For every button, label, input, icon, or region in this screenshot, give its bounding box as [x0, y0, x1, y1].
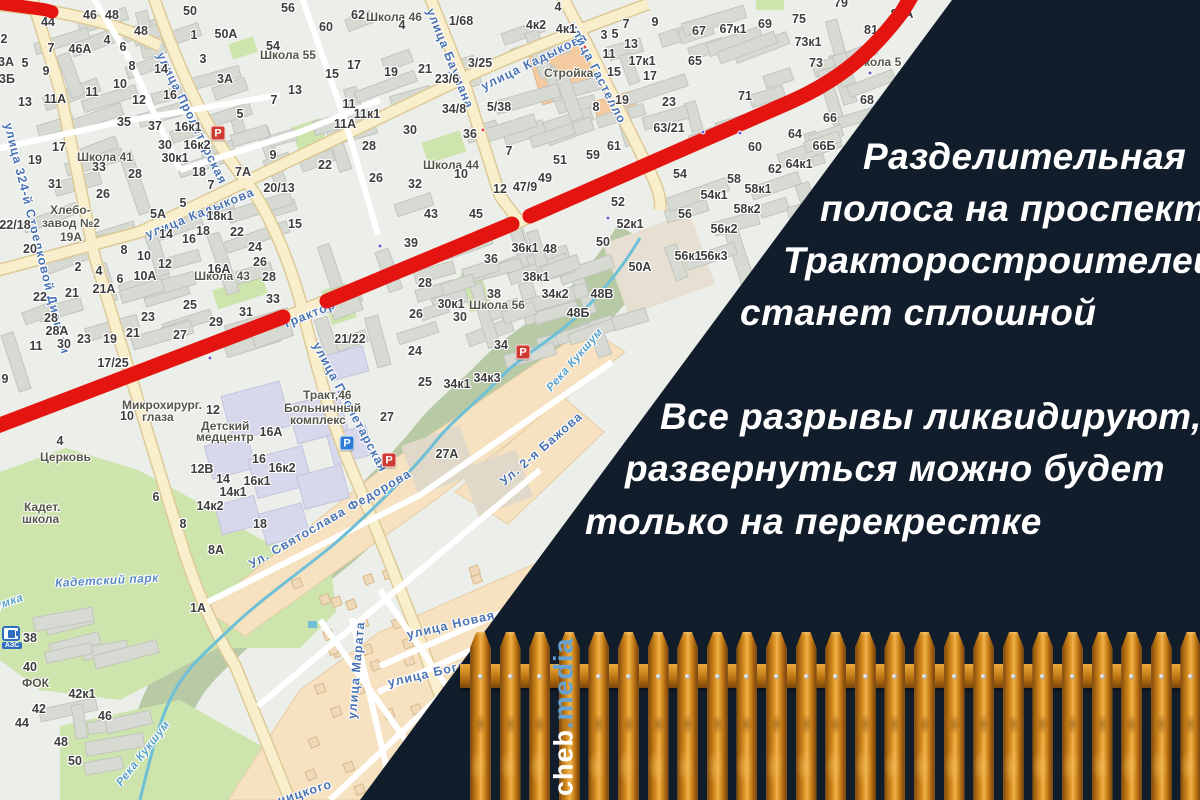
fence-picket: [796, 632, 817, 800]
nail-icon: [596, 674, 601, 679]
fence-picket: [1180, 632, 1200, 800]
watermark-domain: .media: [549, 637, 580, 729]
fence-picket: [884, 632, 905, 800]
nail-icon: [922, 674, 927, 679]
nail-icon: [626, 674, 631, 679]
watermark: cheb.media: [549, 640, 579, 796]
nail-icon: [744, 674, 749, 679]
fence-picket: [588, 632, 609, 800]
nail-icon: [833, 674, 838, 679]
fence-picket: [736, 632, 757, 800]
fence-picket: [470, 632, 491, 800]
fence-picket: [529, 632, 550, 800]
nail-icon: [981, 674, 986, 679]
fence-picket: [500, 632, 521, 800]
nail-icon: [685, 674, 690, 679]
nail-icon: [1188, 674, 1193, 679]
nail-icon: [892, 674, 897, 679]
nail-icon: [952, 674, 957, 679]
fence-picket: [618, 632, 639, 800]
social-card: улица Пролетарскаяулица Пролетарскаяулиц…: [0, 0, 1200, 800]
nail-icon: [863, 674, 868, 679]
fence-picket: [1151, 632, 1172, 800]
fence-picket: [1121, 632, 1142, 800]
fence-picket: [825, 632, 846, 800]
fence-graphic: [0, 0, 1200, 800]
fence-picket: [1032, 632, 1053, 800]
nail-icon: [774, 674, 779, 679]
nail-icon: [537, 674, 542, 679]
nail-icon: [656, 674, 661, 679]
fence-picket: [914, 632, 935, 800]
fence-picket: [677, 632, 698, 800]
nail-icon: [1100, 674, 1105, 679]
fence-picket: [1092, 632, 1113, 800]
nail-icon: [804, 674, 809, 679]
fence-picket: [944, 632, 965, 800]
fence-picket: [855, 632, 876, 800]
nail-icon: [478, 674, 483, 679]
fence-picket: [648, 632, 669, 800]
watermark-site: cheb: [549, 729, 580, 796]
fence-picket: [1062, 632, 1083, 800]
nail-icon: [715, 674, 720, 679]
nail-icon: [1040, 674, 1045, 679]
nail-icon: [1159, 674, 1164, 679]
fence-picket: [766, 632, 787, 800]
nail-icon: [1011, 674, 1016, 679]
fence-picket: [1003, 632, 1024, 800]
nail-icon: [508, 674, 513, 679]
nail-icon: [1129, 674, 1134, 679]
fence-picket: [973, 632, 994, 800]
nail-icon: [1070, 674, 1075, 679]
fence-picket: [707, 632, 728, 800]
